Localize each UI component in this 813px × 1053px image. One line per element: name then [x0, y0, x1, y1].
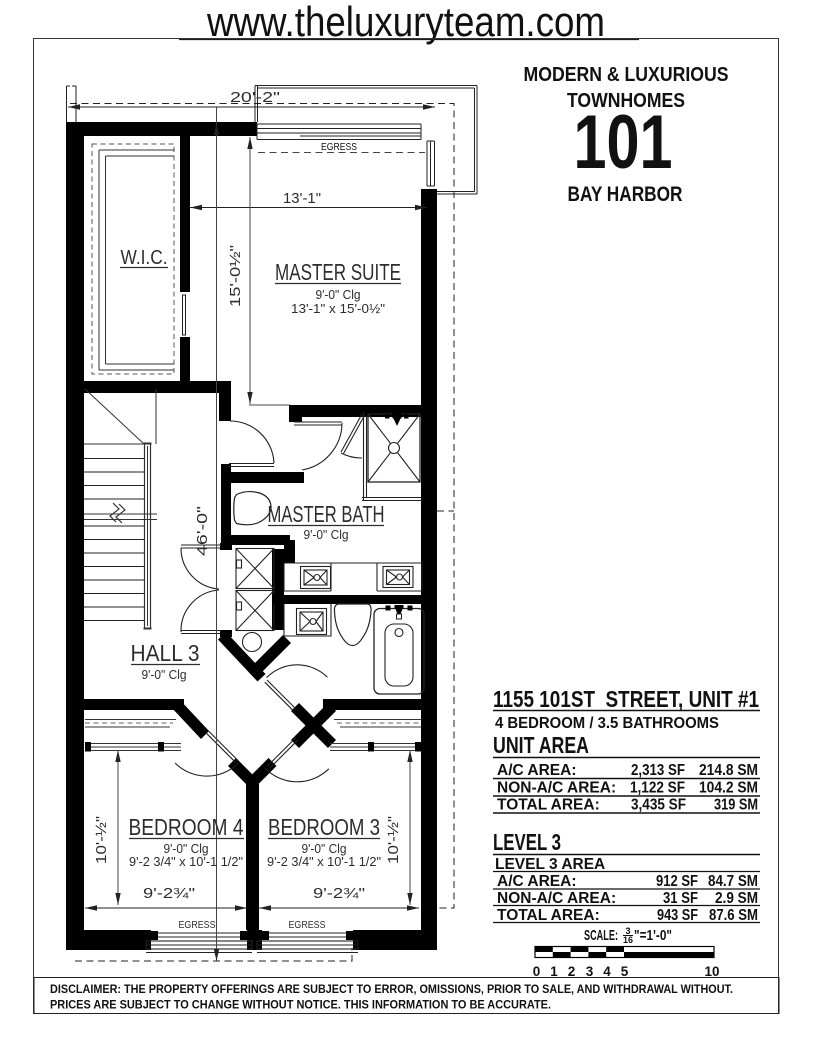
svg-text:MODERN & LUXURIOUS: MODERN & LUXURIOUS: [524, 64, 729, 86]
svg-text:84.7 SM: 84.7 SM: [708, 873, 758, 890]
svg-text:9'-2¾": 9'-2¾": [313, 886, 365, 902]
svg-text:319 SM: 319 SM: [714, 797, 758, 814]
svg-text:TOTAL AREA:: TOTAL AREA:: [497, 797, 600, 814]
svg-text:PRICES ARE SUBJECT TO CHANGE W: PRICES ARE SUBJECT TO CHANGE WITHOUT NOT…: [50, 999, 551, 1012]
svg-text:EGRESS: EGRESS: [321, 141, 357, 153]
svg-text:BAY HARBOR: BAY HARBOR: [568, 183, 683, 206]
svg-text:NON-A/C AREA:: NON-A/C AREA:: [497, 890, 616, 907]
svg-text:0: 0: [533, 964, 541, 979]
svg-text:104.2 SM: 104.2 SM: [699, 780, 758, 797]
svg-text:EGRESS: EGRESS: [289, 919, 326, 931]
svg-text:16: 16: [623, 935, 633, 945]
svg-text:SCALE:: SCALE:: [584, 927, 618, 944]
svg-text:2,313 SF: 2,313 SF: [631, 762, 685, 779]
svg-text:101: 101: [574, 100, 673, 185]
svg-text:BEDROOM 3: BEDROOM 3: [268, 814, 380, 840]
svg-text:912 SF: 912 SF: [656, 873, 698, 890]
svg-text:9'-0" Clg: 9'-0" Clg: [164, 842, 209, 856]
svg-text:10: 10: [704, 964, 719, 979]
svg-text:LEVEL 3: LEVEL 3: [493, 829, 561, 855]
svg-text:TOTAL AREA:: TOTAL AREA:: [497, 907, 600, 924]
svg-text:3: 3: [586, 964, 594, 979]
svg-text:3,435 SF: 3,435 SF: [631, 797, 686, 814]
svg-text:2.9 SM: 2.9 SM: [715, 890, 758, 907]
svg-text:20'-2": 20'-2": [230, 90, 280, 106]
svg-text:9'-0" Clg: 9'-0" Clg: [316, 288, 361, 302]
svg-text:9'-2¾": 9'-2¾": [143, 886, 195, 902]
svg-text:W.I.C.: W.I.C.: [121, 247, 168, 269]
svg-text:A/C AREA:: A/C AREA:: [497, 873, 577, 890]
svg-text:15'-0½": 15'-0½": [228, 245, 244, 307]
svg-text:943 SF: 943 SF: [657, 907, 698, 924]
svg-text:HALL 3: HALL 3: [131, 640, 200, 666]
svg-text:4: 4: [603, 964, 611, 979]
svg-text:NON-A/C AREA:: NON-A/C AREA:: [497, 780, 616, 797]
svg-text:1: 1: [550, 964, 558, 979]
svg-text:13'-1": 13'-1": [283, 191, 321, 207]
svg-text:46'-0": 46'-0": [195, 506, 211, 556]
svg-text:1,122 SF: 1,122 SF: [630, 780, 685, 797]
svg-text:LEVEL 3 AREA: LEVEL 3 AREA: [495, 856, 605, 873]
svg-text:13'-1" x 15'-0½": 13'-1" x 15'-0½": [291, 302, 385, 316]
svg-text:214.8 SM: 214.8 SM: [699, 762, 758, 779]
svg-text:EGRESS: EGRESS: [179, 919, 216, 931]
svg-text:9'-0" Clg: 9'-0" Clg: [142, 668, 187, 682]
svg-text:1155 101ST STREET, UNIT #1: 1155 101ST STREET, UNIT #1: [493, 686, 759, 712]
svg-text:5: 5: [621, 964, 629, 979]
svg-text:9'-2 3/4" x 10'-1 1/2": 9'-2 3/4" x 10'-1 1/2": [129, 855, 243, 869]
svg-text:87.6 SM: 87.6 SM: [709, 907, 758, 924]
svg-text:BEDROOM 4: BEDROOM 4: [129, 814, 244, 840]
svg-text:9'-0" Clg: 9'-0" Clg: [304, 528, 349, 542]
svg-text:A/C AREA:: A/C AREA:: [497, 762, 577, 779]
svg-text:4 BEDROOM / 3.5 BATHROOMS: 4 BEDROOM / 3.5 BATHROOMS: [495, 715, 719, 732]
svg-text:MASTER SUITE: MASTER SUITE: [275, 259, 401, 285]
svg-text:MASTER BATH: MASTER BATH: [268, 501, 385, 527]
svg-text:UNIT AREA: UNIT AREA: [493, 732, 589, 758]
svg-text:9'-2 3/4" x 10'-1 1/2": 9'-2 3/4" x 10'-1 1/2": [267, 855, 381, 869]
svg-text:10'-½": 10'-½": [386, 816, 402, 864]
svg-text:DISCLAIMER: THE PROPERTY OFFER: DISCLAIMER: THE PROPERTY OFFERINGS ARE S…: [50, 983, 733, 996]
svg-text:"=1'-0": "=1'-0": [634, 927, 672, 944]
svg-text:9'-0" Clg: 9'-0" Clg: [302, 842, 347, 856]
svg-text:31 SF: 31 SF: [663, 890, 698, 907]
svg-text:10'-½": 10'-½": [94, 816, 110, 864]
svg-text:2: 2: [568, 964, 576, 979]
